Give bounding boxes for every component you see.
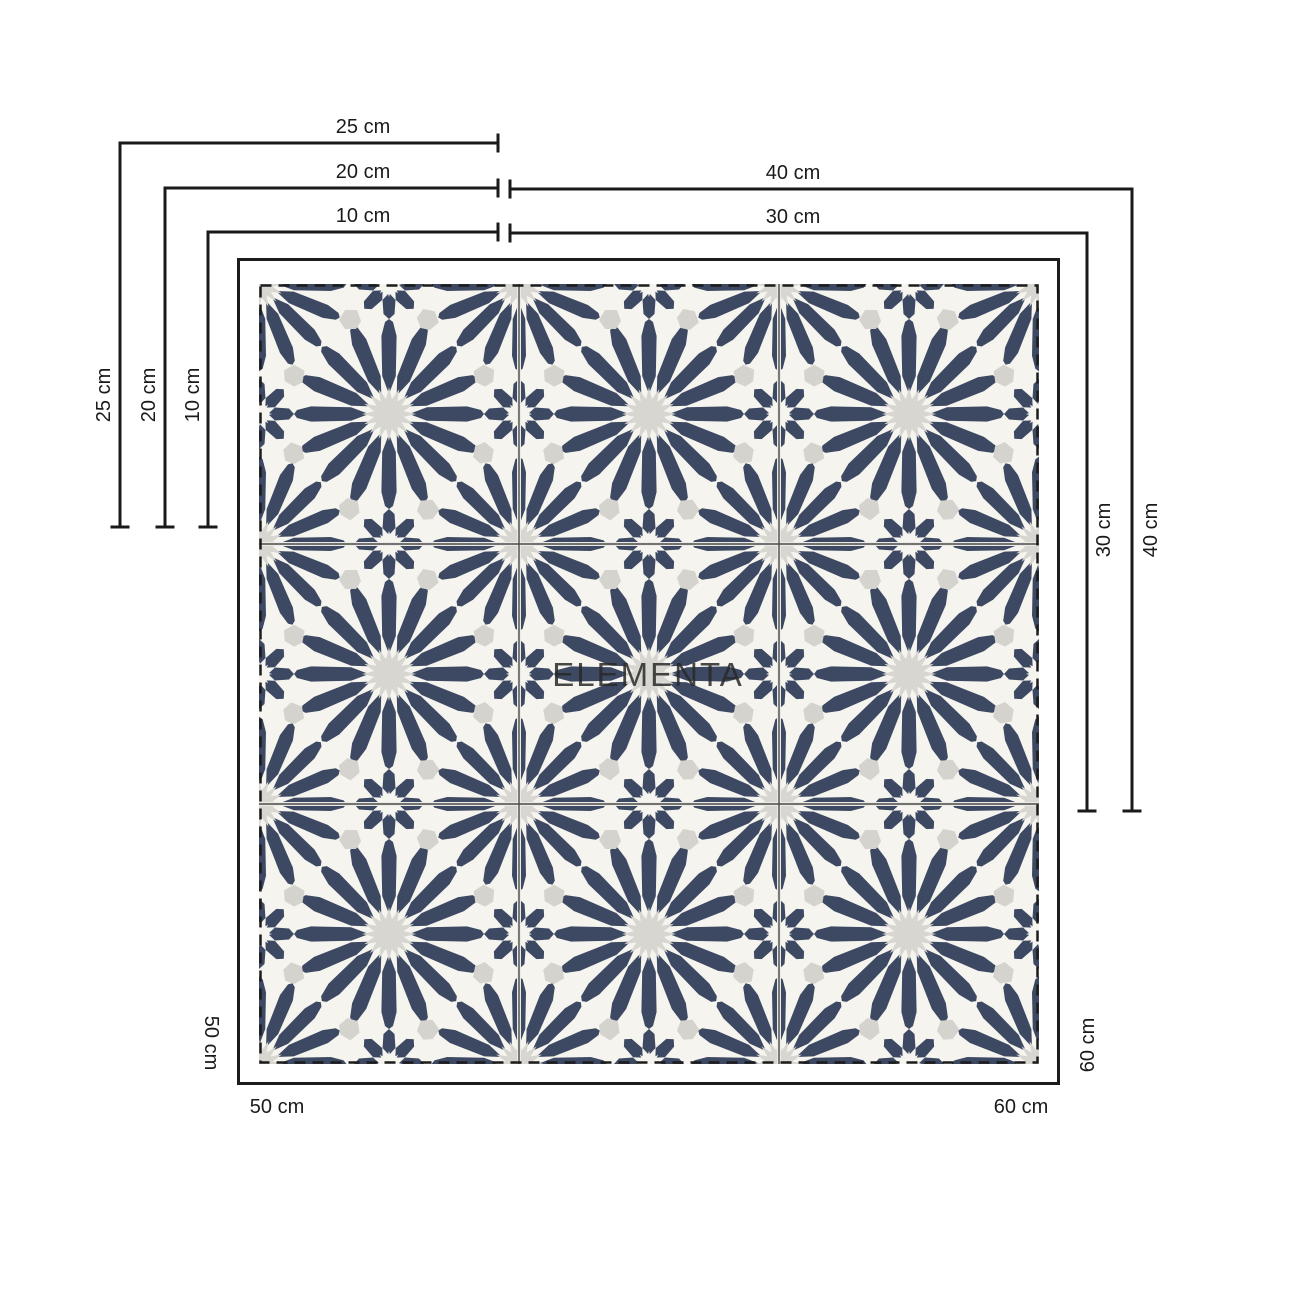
watermark-text: ELEMENTA xyxy=(552,656,743,694)
dim-label-30cm-vertical: 30 cm xyxy=(1093,503,1115,557)
dim-label-20cm-horizontal: 20 cm xyxy=(336,161,390,183)
dim-label-30cm-horizontal: 30 cm xyxy=(766,206,820,228)
dim-label-60cm-horizontal: 60 cm xyxy=(994,1096,1048,1118)
dim-label-60cm-vertical: 60 cm xyxy=(1077,1018,1099,1072)
dim-label-50cm-vertical: 50 cm xyxy=(200,1016,222,1070)
dim-label-50cm-horizontal: 50 cm xyxy=(250,1096,304,1118)
dim-label-40cm-vertical: 40 cm xyxy=(1140,503,1162,557)
product-dimension-diagram: 25 cm 20 cm 10 cm 40 cm 30 cm 50 cm 60 c… xyxy=(0,0,1291,1291)
dim-label-25cm-vertical: 25 cm xyxy=(93,368,115,422)
dim-label-10cm-horizontal: 10 cm xyxy=(336,205,390,227)
dim-label-10cm-vertical: 10 cm xyxy=(182,368,204,422)
dim-label-20cm-vertical: 20 cm xyxy=(138,368,160,422)
dim-label-40cm-horizontal: 40 cm xyxy=(766,162,820,184)
dim-label-25cm-horizontal: 25 cm xyxy=(336,116,390,138)
